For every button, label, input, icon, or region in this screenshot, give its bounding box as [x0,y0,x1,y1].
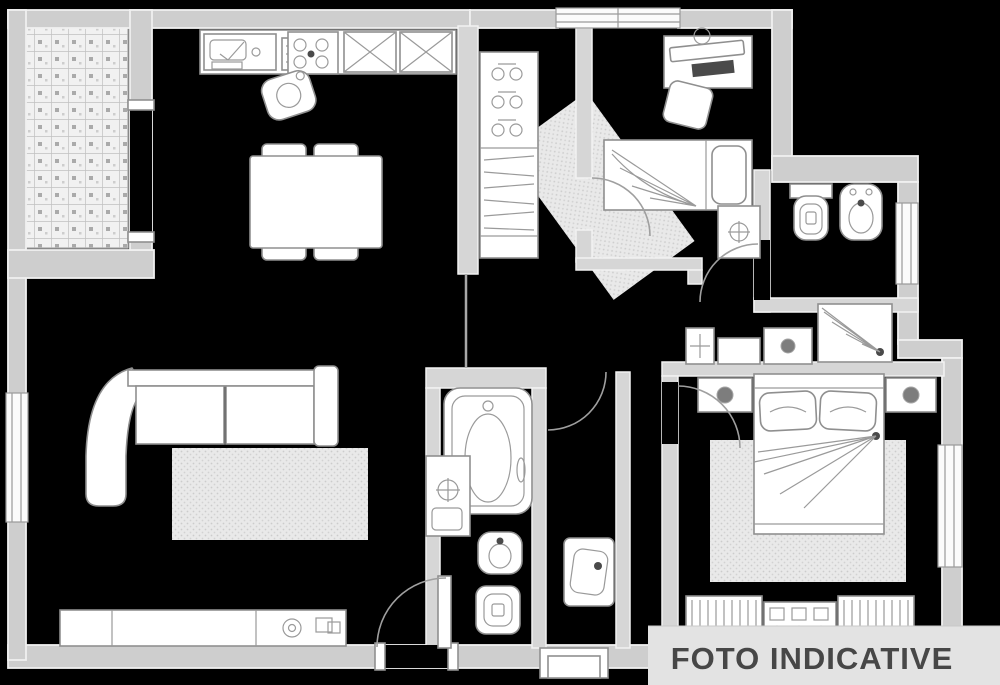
single-bed-icon [604,140,752,210]
bidet-icon [840,184,882,240]
cooktop-icon [288,32,338,74]
nightstand-icon [764,328,812,364]
window-left [6,393,28,522]
terrace [14,16,128,248]
watermark-text: FOTO INDICATIVE [671,641,954,676]
nightstand-icon [886,378,936,412]
duct-column [686,328,714,364]
sink-icon [204,34,276,70]
living-rug [172,448,368,540]
watermark: FOTO INDICATIVE [648,626,1000,685]
bench-icon [718,338,760,364]
washbasin-vanity-icon [426,456,470,536]
bidet-icon [478,532,522,574]
threshold-step [540,648,608,678]
shower-icon [818,304,892,362]
dining-table-icon [250,144,382,260]
toilet-icon [790,184,832,240]
floor-plan-image: FOTO INDICATIVE [0,0,1000,685]
entry-door-leaf [438,576,451,648]
floor-plan-svg: FOTO INDICATIVE [0,0,1000,685]
door-jamb [128,232,154,242]
toilet-icon [476,586,520,634]
double-bed-icon [754,374,884,534]
door-jamb [128,100,154,110]
desk-icon [664,28,752,88]
window-top [556,8,680,28]
sideboard-icon [60,610,346,646]
washbasin-unit-icon [564,538,614,606]
door-jamb [375,643,385,670]
wardrobe-icon [480,52,538,258]
window-master [938,445,962,567]
wall-unit-icon [718,206,760,258]
window-bathroom-top [896,203,918,284]
